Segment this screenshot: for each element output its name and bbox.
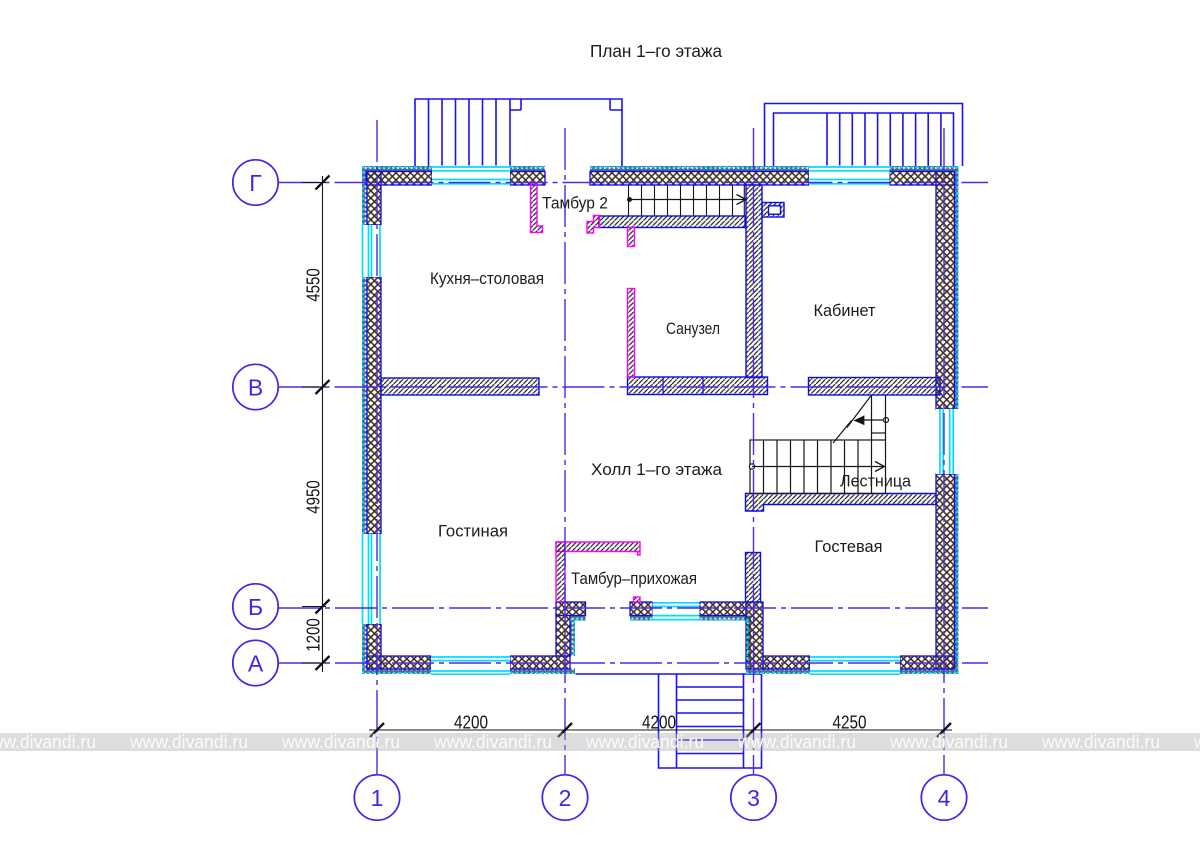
svg-text:Гостиная: Гостиная (438, 522, 508, 541)
svg-text:4250: 4250 (833, 712, 867, 733)
svg-text:Г: Г (249, 170, 262, 196)
svg-text:Лестница: Лестница (840, 472, 912, 491)
svg-text:Б: Б (248, 594, 263, 620)
svg-text:А: А (248, 650, 264, 676)
svg-text:Гостевая: Гостевая (815, 537, 883, 556)
svg-text:1: 1 (371, 785, 384, 811)
svg-text:Санузел: Санузел (666, 319, 720, 338)
svg-text:Тамбур 2: Тамбур 2 (542, 194, 608, 213)
svg-text:В: В (248, 374, 263, 400)
svg-text:Холл 1–го этажа: Холл 1–го этажа (591, 460, 723, 479)
svg-text:Тамбур–прихожая: Тамбур–прихожая (571, 569, 697, 588)
svg-text:1200: 1200 (303, 618, 324, 652)
svg-text:www.divandi.ru: www.divandi.ru (889, 731, 1008, 752)
svg-text:Кухня–столовая: Кухня–столовая (430, 269, 544, 288)
svg-text:4950: 4950 (303, 480, 324, 514)
svg-text:www.divandi.ru: www.divandi.ru (585, 731, 704, 752)
svg-text:3: 3 (747, 785, 760, 811)
svg-text:4200: 4200 (454, 712, 488, 733)
svg-text:4550: 4550 (303, 268, 324, 302)
svg-text:www.divandi.ru: www.divandi.ru (1041, 731, 1160, 752)
svg-text:План 1–го этажа: План 1–го этажа (590, 41, 722, 61)
svg-text:Кабинет: Кабинет (814, 301, 876, 320)
svg-text:www.divandi.ru: www.divandi.ru (737, 731, 856, 752)
svg-text:www.divandi.ru: www.divandi.ru (281, 731, 400, 752)
svg-text:www.divandi.ru: www.divandi.ru (129, 731, 248, 752)
svg-text:www.divandi.ru: www.divandi.ru (0, 731, 96, 752)
svg-text:www.divandi.ru: www.divandi.ru (1193, 731, 1200, 752)
svg-text:4200: 4200 (642, 712, 676, 733)
svg-text:4: 4 (938, 785, 951, 811)
svg-text:2: 2 (559, 785, 572, 811)
svg-text:www.divandi.ru: www.divandi.ru (433, 731, 552, 752)
